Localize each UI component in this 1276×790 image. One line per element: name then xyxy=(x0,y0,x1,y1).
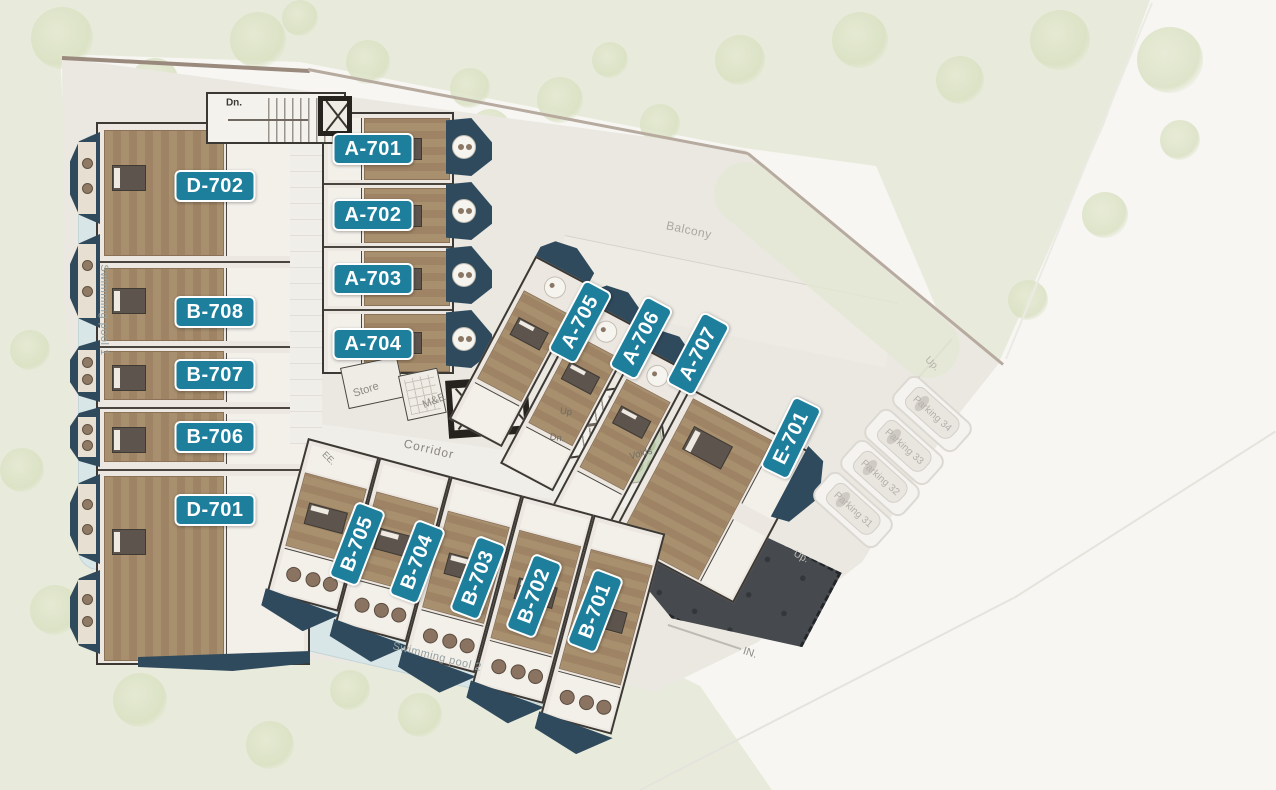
unit-divider-wall xyxy=(324,183,452,185)
balcony-table xyxy=(452,327,476,351)
site-floor-plan: Dn. Store M&E Corridor EE. Up Dn. Voids … xyxy=(0,0,1276,790)
in-label: IN. xyxy=(741,645,758,661)
table-setting xyxy=(466,208,472,214)
road-edge xyxy=(1013,431,1276,599)
unit-divider-wall xyxy=(324,309,452,311)
balcony-table xyxy=(452,199,476,223)
balcony-table xyxy=(452,135,476,159)
unit-divider-wall xyxy=(98,407,308,409)
lounge-chair xyxy=(82,594,93,605)
pillow xyxy=(114,532,120,552)
tree-icon xyxy=(0,448,44,492)
tree-icon xyxy=(230,12,286,68)
tree-icon xyxy=(715,35,765,85)
stair-rail xyxy=(228,119,308,121)
bed xyxy=(112,427,146,453)
tree-icon xyxy=(832,12,888,68)
corridor-north xyxy=(290,92,322,444)
unit-divider-wall xyxy=(98,346,308,348)
unit-badge-A-704[interactable]: A-704 xyxy=(333,328,414,360)
corridor-texture xyxy=(290,92,322,444)
pillow xyxy=(114,168,120,188)
unit-badge-A-703[interactable]: A-703 xyxy=(333,263,414,295)
lounge-chair xyxy=(82,524,93,535)
pillow xyxy=(114,368,120,388)
lounge-chair xyxy=(82,286,93,297)
table-setting xyxy=(458,144,464,150)
lounge-chair xyxy=(82,158,93,169)
table-setting xyxy=(600,326,607,333)
unit-badge-B-708[interactable]: B-708 xyxy=(175,296,256,328)
table-setting xyxy=(466,272,472,278)
bed xyxy=(112,165,146,191)
balcony-floor xyxy=(78,580,96,644)
balcony-floor xyxy=(78,244,96,318)
unit-badge-A-702[interactable]: A-702 xyxy=(333,199,414,231)
tree-icon xyxy=(1082,192,1128,238)
tree-icon xyxy=(1030,10,1090,70)
lounge-chair xyxy=(82,424,93,435)
tree-icon xyxy=(592,42,628,78)
lounge-chair xyxy=(82,440,93,451)
unit-divider-wall xyxy=(98,261,308,263)
table-setting xyxy=(651,370,658,377)
tree-icon xyxy=(1160,120,1200,160)
tree-icon xyxy=(113,673,167,727)
tree-icon xyxy=(1137,27,1203,93)
bed xyxy=(112,365,146,391)
table-setting xyxy=(458,336,464,342)
table-setting xyxy=(549,282,556,289)
balcony-table xyxy=(452,263,476,287)
unit-divider-wall xyxy=(98,469,308,471)
lounge-chair xyxy=(82,183,93,194)
tree-icon xyxy=(282,0,318,36)
unit-badge-B-707[interactable]: B-707 xyxy=(175,359,256,391)
unit-badge-A-701[interactable]: A-701 xyxy=(333,133,414,165)
pillow xyxy=(114,430,120,450)
bed xyxy=(112,288,146,314)
table-setting xyxy=(458,272,464,278)
pool1-label: Swimming pool 1 xyxy=(98,264,110,355)
elevator-shaft xyxy=(318,96,352,136)
bed xyxy=(112,529,146,555)
stair-top-dn-label: Dn. xyxy=(226,98,242,109)
tree-icon xyxy=(10,330,50,370)
elevator-cab xyxy=(323,101,347,131)
balcony-table xyxy=(540,273,570,303)
unit-badge-D-702[interactable]: D-702 xyxy=(175,170,256,202)
pillow xyxy=(380,530,399,539)
pillow xyxy=(310,505,329,514)
tree-icon xyxy=(936,56,984,104)
balcony-floor xyxy=(78,142,96,214)
table-setting xyxy=(466,336,472,342)
unit-badge-B-706[interactable]: B-706 xyxy=(175,421,256,453)
stair-dn-label: Dn. xyxy=(549,432,565,445)
tree-icon xyxy=(246,721,294,769)
table-setting xyxy=(466,144,472,150)
unit-badge-D-701[interactable]: D-701 xyxy=(175,494,256,526)
balcony-floor xyxy=(78,484,96,554)
table-setting xyxy=(458,208,464,214)
stair-up-label: Up xyxy=(559,406,573,419)
balcony-floor xyxy=(78,350,96,392)
pillow xyxy=(114,291,120,311)
unit-divider-wall xyxy=(324,246,452,248)
